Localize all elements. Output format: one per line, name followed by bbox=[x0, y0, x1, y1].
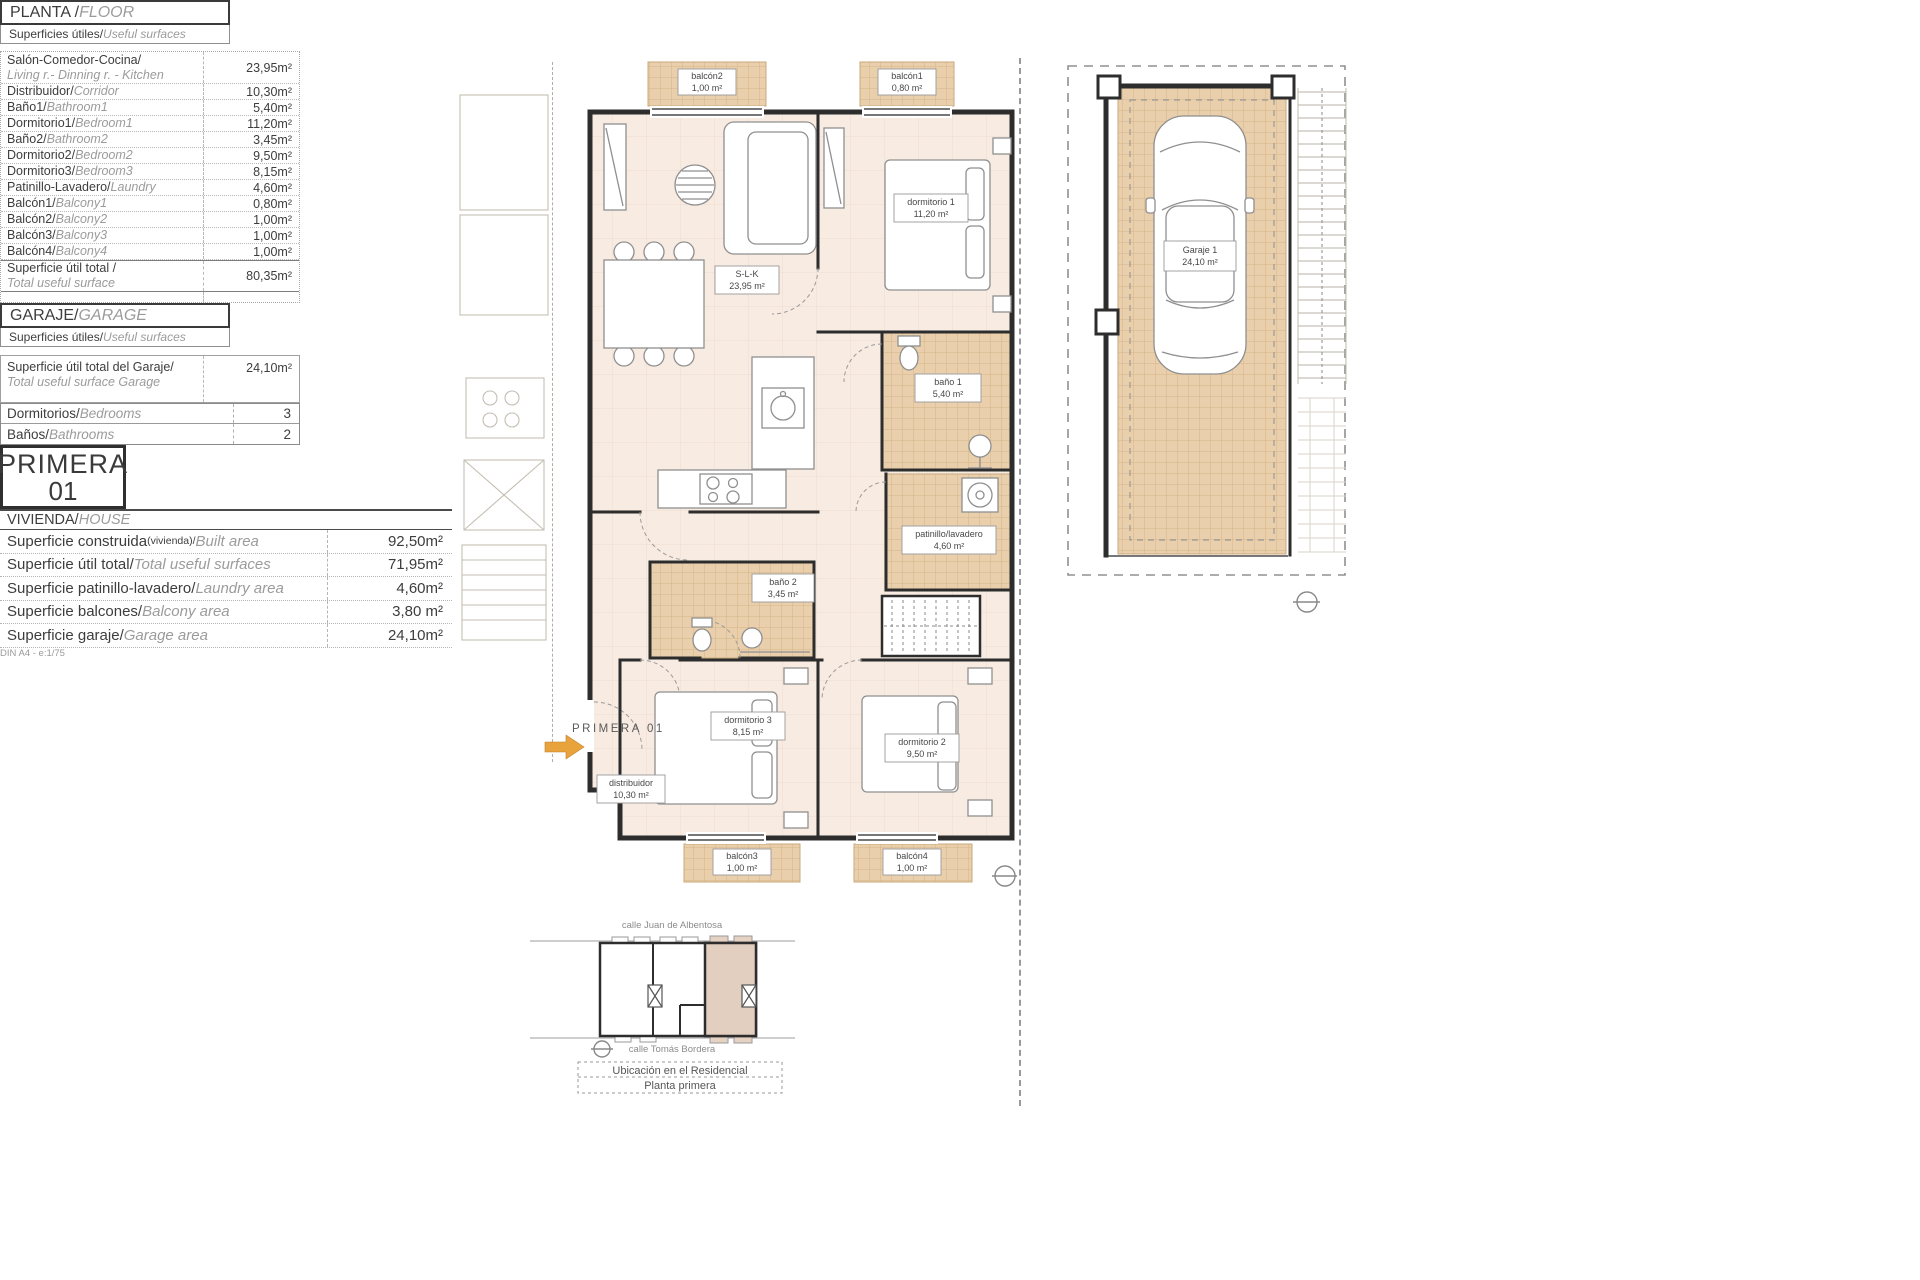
svg-text:balcón1: balcón1 bbox=[891, 71, 923, 81]
washing-machine-icon bbox=[962, 478, 998, 512]
svg-text:balcón2: balcón2 bbox=[691, 71, 723, 81]
table-row: Superficie garaje/Garage area 24,10m² bbox=[0, 624, 452, 648]
svg-text:dormitorio 3: dormitorio 3 bbox=[724, 715, 772, 725]
svg-text:patinillo/lavadero: patinillo/lavadero bbox=[915, 529, 983, 539]
svg-text:distribuidor: distribuidor bbox=[609, 778, 653, 788]
sofa-icon bbox=[724, 122, 816, 254]
coffee-table-icon bbox=[675, 165, 715, 205]
table-row: Superficie balcones/Balcony area 3,80 m² bbox=[0, 601, 452, 625]
north-symbol-icon bbox=[1288, 590, 1328, 614]
unit-name: PRIMERA bbox=[0, 450, 128, 478]
svg-text:baño 2: baño 2 bbox=[769, 577, 797, 587]
svg-text:8,15 m²: 8,15 m² bbox=[733, 727, 764, 737]
svg-text:1,00 m²: 1,00 m² bbox=[897, 863, 928, 873]
svg-text:baño 1: baño 1 bbox=[934, 377, 962, 387]
garage-plan: Garaje 1 24,10 m² bbox=[1055, 58, 1365, 588]
table-row: Superficie útil total/Total useful surfa… bbox=[0, 554, 452, 578]
spacer-row bbox=[1, 292, 299, 302]
bedrooms-row: Dormitorios/Bedrooms 3 bbox=[1, 404, 299, 424]
svg-text:S-L-K: S-L-K bbox=[735, 269, 758, 279]
floor-title-es: PLANTA / bbox=[10, 4, 79, 22]
table-row: Superficie útil total del Garaje/ Total … bbox=[1, 356, 299, 402]
neighbour-outline bbox=[460, 95, 548, 640]
total-row: Superficie útil total / Total useful sur… bbox=[1, 260, 299, 292]
entry-arrow-icon bbox=[545, 735, 584, 759]
counts-table: Dormitorios/Bedrooms 3 Baños/Bathrooms 2 bbox=[0, 403, 300, 445]
svg-text:1,00 m²: 1,00 m² bbox=[727, 863, 758, 873]
svg-text:Planta primera: Planta primera bbox=[644, 1080, 716, 1092]
unit-badge: PRIMERA 01 bbox=[0, 445, 126, 509]
garage-section-title: GARAJE/GARAGE bbox=[0, 303, 230, 328]
north-symbol-icon bbox=[591, 1041, 613, 1057]
table-row: Superficie patinillo-lavadero/Laundry ar… bbox=[0, 577, 452, 601]
toilet-icon bbox=[692, 618, 712, 651]
svg-text:Ubicación en el Residencial: Ubicación en el Residencial bbox=[612, 1065, 747, 1077]
svg-text:10,30 m²: 10,30 m² bbox=[613, 790, 649, 800]
garage-label: Garaje 1 24,10 m² bbox=[1164, 241, 1236, 271]
table-row: Dormitorio2/Bedroom2 9,50m² bbox=[1, 148, 299, 164]
svg-text:11,20 m²: 11,20 m² bbox=[914, 209, 949, 219]
svg-text:1,00 m²: 1,00 m² bbox=[692, 83, 723, 93]
street-label-top: calle Juan de Albentosa bbox=[622, 920, 723, 931]
floor-areas-table: Salón-Comedor-Cocina/Living r.- Dinning … bbox=[0, 51, 300, 303]
floor-section-title: PLANTA / FLOOR bbox=[0, 0, 230, 25]
svg-text:5,40 m²: 5,40 m² bbox=[933, 389, 964, 399]
table-row: Superficie construida(vivienda)/Built ar… bbox=[0, 530, 452, 554]
floor-plan: PRIMERA 01 S-L-K 23,95 m² dormitorio 1 1… bbox=[430, 55, 1030, 890]
svg-text:balcón4: balcón4 bbox=[896, 851, 928, 861]
svg-text:0,80 m²: 0,80 m² bbox=[892, 83, 923, 93]
stairwell bbox=[1298, 88, 1346, 552]
bathrooms-row: Baños/Bathrooms 2 bbox=[1, 424, 299, 444]
floor-title-en: FLOOR bbox=[79, 4, 134, 22]
entry-label: PRIMERA 01 bbox=[572, 723, 665, 735]
table-row: Baño2/Bathroom2 3,45m² bbox=[1, 132, 299, 148]
residential-block bbox=[600, 936, 756, 1043]
svg-text:9,50 m²: 9,50 m² bbox=[907, 749, 938, 759]
dining-table-icon bbox=[604, 242, 704, 366]
plan-sheet: PRIMERA 01 S-L-K 23,95 m² dormitorio 1 1… bbox=[0, 0, 1920, 1280]
location-caption: Ubicación en el Residencial Planta prime… bbox=[578, 1062, 782, 1093]
svg-text:dormitorio 1: dormitorio 1 bbox=[907, 197, 955, 207]
toilet-icon bbox=[898, 336, 920, 370]
svg-text:4,60 m²: 4,60 m² bbox=[934, 541, 965, 551]
table-row: Distribuidor/Corridor 10,30m² bbox=[1, 84, 299, 100]
table-row: Dormitorio3/Bedroom3 8,15m² bbox=[1, 164, 299, 180]
house-section-title: VIVIENDA/HOUSE bbox=[0, 509, 452, 530]
location-map: calle Juan de Albentosa bbox=[455, 895, 795, 1100]
svg-text:dormitorio 2: dormitorio 2 bbox=[898, 737, 946, 747]
table-row: Patinillo-Lavadero/Laundry 4,60m² bbox=[1, 180, 299, 196]
unit-number: 01 bbox=[49, 478, 78, 505]
svg-text:24,10 m²: 24,10 m² bbox=[1182, 257, 1218, 267]
table-row: Balcón2/Balcony2 1,00m² bbox=[1, 212, 299, 228]
svg-text:3,45 m²: 3,45 m² bbox=[768, 589, 799, 599]
table-row: Baño1/Bathroom1 5,40m² bbox=[1, 100, 299, 116]
garage-section-subtitle: Superficies útiles/Useful surfaces bbox=[0, 328, 230, 347]
house-section: VIVIENDA/HOUSE Superficie construida(viv… bbox=[0, 509, 452, 648]
svg-text:23,95 m²: 23,95 m² bbox=[729, 281, 765, 291]
table-row: Balcón3/Balcony3 1,00m² bbox=[1, 228, 299, 244]
wardrobe-icon bbox=[824, 128, 844, 208]
wardrobe-icon bbox=[604, 124, 626, 210]
street-label-bottom: calle Tomás Bordera bbox=[629, 1044, 716, 1055]
table-row: Salón-Comedor-Cocina/Living r.- Dinning … bbox=[1, 52, 299, 84]
table-row: Balcón1/Balcony1 0,80m² bbox=[1, 196, 299, 212]
table-row: Balcón4/Balcony4 1,00m² bbox=[1, 244, 299, 260]
floor-section-subtitle: Superficies útiles/Useful surfaces bbox=[0, 25, 230, 44]
table-row: Dormitorio1/Bedroom1 11,20m² bbox=[1, 116, 299, 132]
svg-text:Garaje 1: Garaje 1 bbox=[1183, 245, 1218, 255]
garage-areas-table: Superficie útil total del Garaje/ Total … bbox=[0, 355, 300, 403]
svg-text:balcón3: balcón3 bbox=[726, 851, 758, 861]
north-symbol-icon bbox=[992, 866, 1017, 886]
